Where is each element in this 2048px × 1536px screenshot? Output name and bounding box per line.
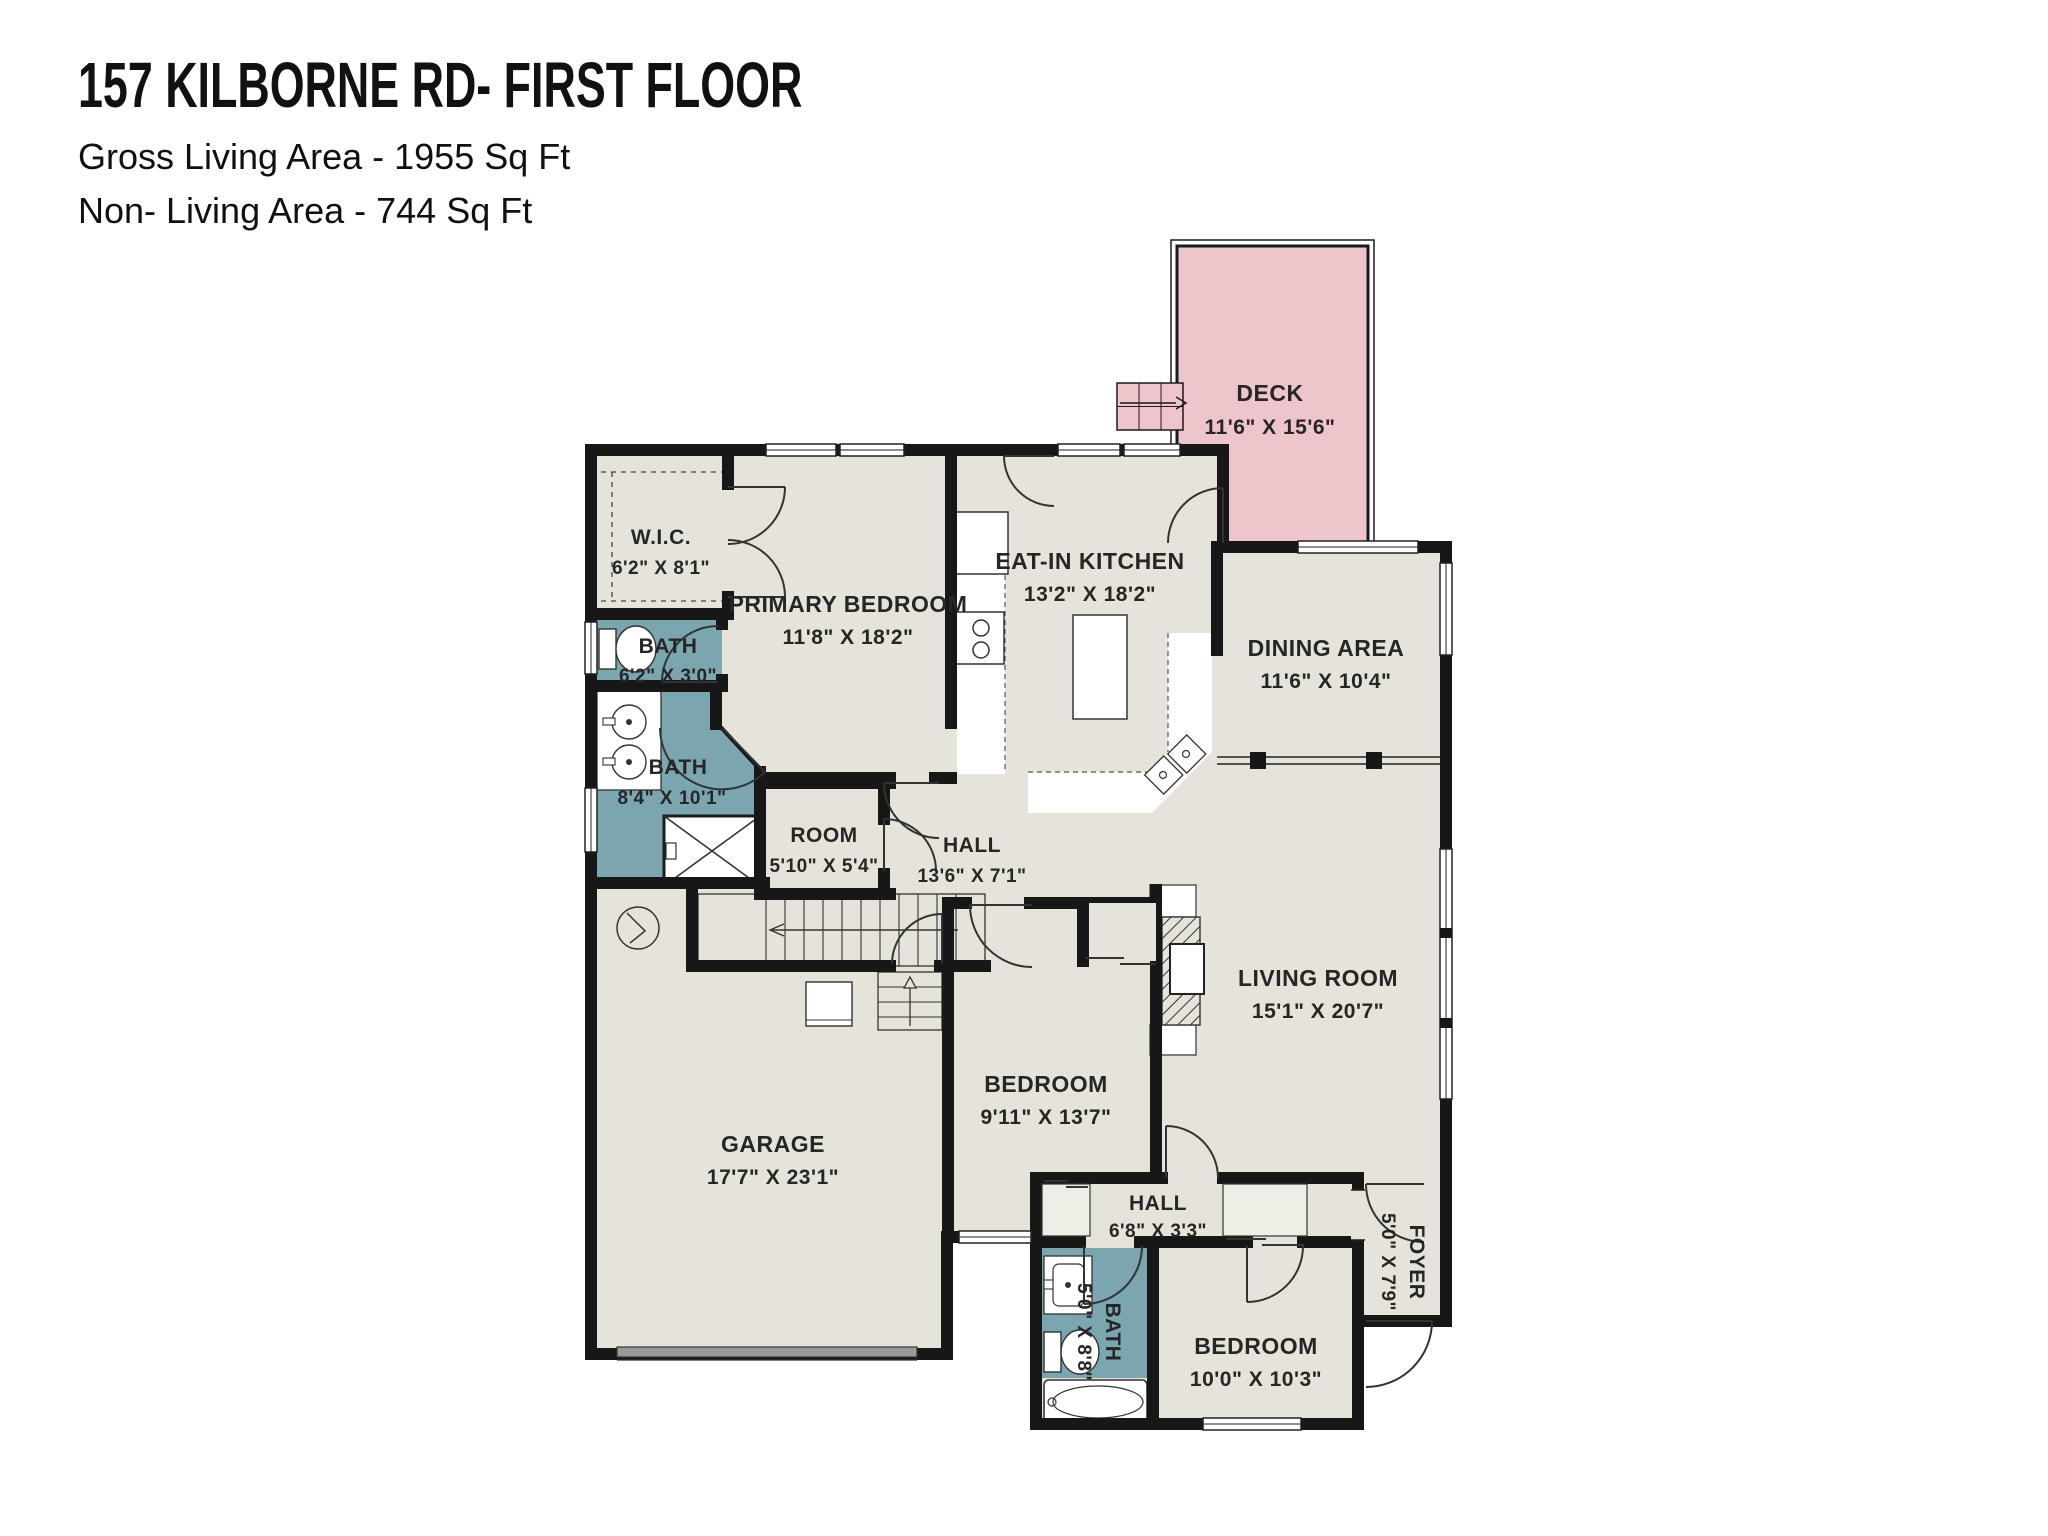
svg-text:DECK: DECK <box>1236 380 1303 406</box>
kitchen-island <box>1073 615 1127 719</box>
svg-text:5'0" X 8'8": 5'0" X 8'8" <box>1073 1283 1094 1381</box>
svg-text:BATH: BATH <box>1101 1303 1124 1362</box>
electrical-panel-icon <box>617 907 659 949</box>
front-door <box>1366 1321 1432 1387</box>
svg-text:9'11" X 13'7": 9'11" X 13'7" <box>981 1106 1112 1129</box>
svg-text:PRIMARY BEDROOM: PRIMARY BEDROOM <box>729 591 968 617</box>
shower-icon <box>664 816 760 886</box>
svg-text:15'1" X 20'7": 15'1" X 20'7" <box>1252 1000 1384 1023</box>
svg-text:HALL: HALL <box>943 834 1001 857</box>
svg-text:HALL: HALL <box>1129 1192 1187 1215</box>
hall-closet <box>1042 1181 1090 1236</box>
svg-text:BATH: BATH <box>649 756 708 779</box>
svg-text:17'7" X 23'1": 17'7" X 23'1" <box>707 1166 839 1189</box>
svg-text:6'2" X 8'1": 6'2" X 8'1" <box>612 558 710 579</box>
svg-text:13'2" X 18'2": 13'2" X 18'2" <box>1024 583 1156 606</box>
bathtub-icon <box>1044 1380 1147 1424</box>
stove-icon <box>956 612 1004 664</box>
svg-text:8'4" X 10'1": 8'4" X 10'1" <box>617 788 726 809</box>
svg-text:5'10" X 5'4": 5'10" X 5'4" <box>769 856 878 877</box>
svg-text:ROOM: ROOM <box>790 824 857 847</box>
svg-text:5'0" X 7'9": 5'0" X 7'9" <box>1377 1213 1398 1311</box>
svg-text:BEDROOM: BEDROOM <box>984 1071 1108 1097</box>
water-heater-icon <box>806 982 852 1026</box>
floor-plan-drawing: DECK 11'6" X 15'6" W.I.C. 6'2" X 8'1" BA… <box>0 0 2048 1536</box>
svg-text:6'8" X 3'3": 6'8" X 3'3" <box>1109 1221 1207 1242</box>
svg-text:13'6" X 7'1": 13'6" X 7'1" <box>917 866 1026 887</box>
bedroom-corner-closet <box>1223 1184 1307 1245</box>
svg-text:FOYER: FOYER <box>1405 1225 1428 1300</box>
svg-text:10'0" X 10'3": 10'0" X 10'3" <box>1190 1368 1322 1391</box>
svg-text:11'6" X 15'6": 11'6" X 15'6" <box>1205 416 1336 439</box>
svg-text:BATH: BATH <box>639 635 698 658</box>
foyer-opening <box>1351 1190 1365 1240</box>
svg-text:11'6" X 10'4": 11'6" X 10'4" <box>1261 670 1392 693</box>
svg-text:BEDROOM: BEDROOM <box>1194 1333 1318 1359</box>
svg-text:6'2" X 3'0": 6'2" X 3'0" <box>619 666 717 687</box>
bedroom-center-closet <box>1086 903 1156 964</box>
svg-text:W.I.C.: W.I.C. <box>631 526 691 549</box>
svg-text:LIVING ROOM: LIVING ROOM <box>1238 965 1398 991</box>
svg-text:11'8" X 18'2": 11'8" X 18'2" <box>783 626 914 649</box>
svg-text:EAT-IN KITCHEN: EAT-IN KITCHEN <box>995 548 1184 574</box>
floor-plan-page: 157 KILBORNE RD- FIRST FLOOR Gross Livin… <box>0 0 2048 1536</box>
svg-text:GARAGE: GARAGE <box>721 1131 825 1157</box>
svg-text:DINING AREA: DINING AREA <box>1248 635 1405 661</box>
garage-steps <box>878 972 942 1030</box>
deck-stairs-icon <box>1117 383 1186 430</box>
